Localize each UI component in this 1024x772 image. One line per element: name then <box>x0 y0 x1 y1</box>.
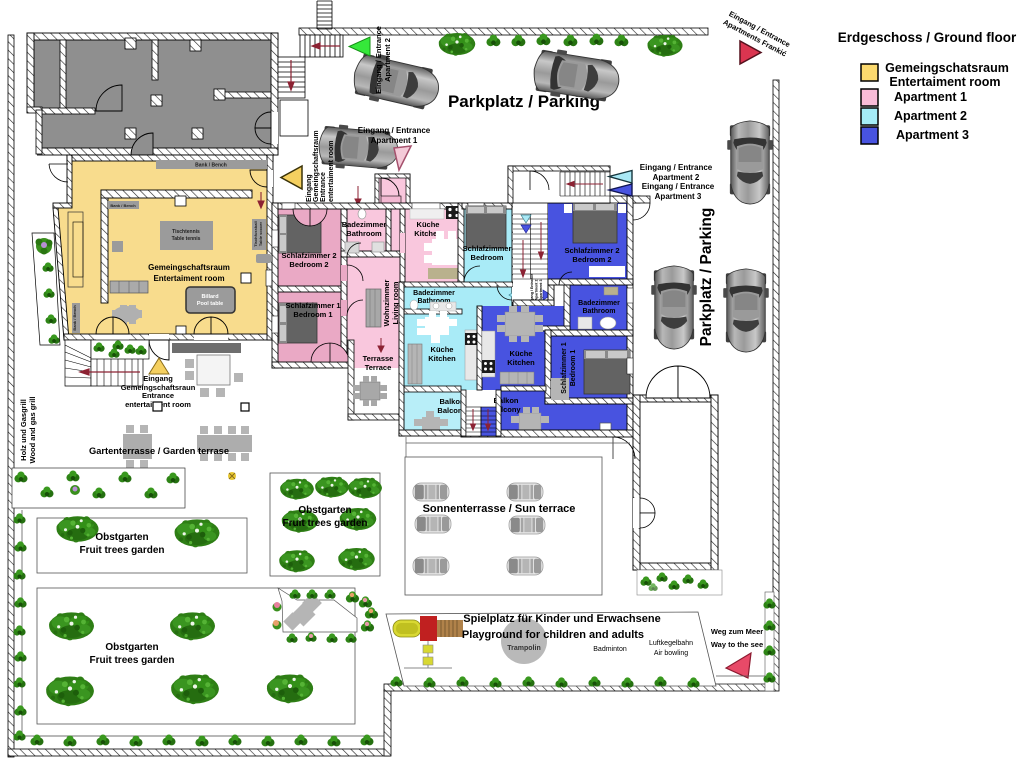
svg-text:Badezimmer: Badezimmer <box>342 220 387 229</box>
svg-text:Entertaiment room: Entertaiment room <box>153 274 224 283</box>
svg-text:Obstgarten: Obstgarten <box>95 532 148 543</box>
svg-text:Table tennis: Table tennis <box>172 236 201 242</box>
svg-text:Table soccer: Table soccer <box>258 221 263 246</box>
svg-text:Bathroom: Bathroom <box>582 308 615 315</box>
svg-text:Apartment 3: Apartment 3 <box>896 128 969 142</box>
svg-text:Schlafzimmer 2: Schlafzimmer 2 <box>281 251 336 260</box>
svg-text:Gemeingschaftsraum: Gemeingschaftsraum <box>148 263 230 272</box>
svg-text:Pool table: Pool table <box>197 301 223 307</box>
svg-text:Fruit trees garden: Fruit trees garden <box>282 518 367 529</box>
svg-text:Gemeingschatsraum: Gemeingschatsraum <box>885 61 1009 75</box>
svg-text:Eingang / Entrance: Eingang / Entrance <box>642 182 715 191</box>
svg-text:Bedroom 2: Bedroom 2 <box>572 255 611 264</box>
svg-text:Bathroom: Bathroom <box>346 229 382 238</box>
svg-text:Luftkegelbahn: Luftkegelbahn <box>649 640 693 647</box>
svg-text:Kitchen: Kitchen <box>428 354 456 363</box>
svg-text:Terrace: Terrace <box>365 363 392 372</box>
svg-text:Küche: Küche <box>510 349 533 358</box>
svg-text:Bedroom 1: Bedroom 1 <box>570 350 577 387</box>
svg-text:Tischtennis: Tischtennis <box>172 229 200 235</box>
svg-text:Badminton: Badminton <box>593 646 627 653</box>
svg-text:Parkplatz / Parking: Parkplatz / Parking <box>698 208 715 347</box>
svg-text:Apartment 3: Apartment 3 <box>539 280 543 301</box>
svg-text:Apartment 3: Apartment 3 <box>655 192 702 201</box>
svg-text:Fruit trees garden: Fruit trees garden <box>89 655 174 666</box>
svg-text:Apartment 1: Apartment 1 <box>371 136 418 145</box>
svg-text:Fruit trees garden: Fruit trees garden <box>79 545 164 556</box>
svg-text:Eingang: Eingang <box>143 374 173 383</box>
svg-text:Bank / Bench: Bank / Bench <box>72 305 77 331</box>
svg-text:Apartment 1: Apartment 1 <box>894 90 967 104</box>
svg-text:Eingang / Entrance: Eingang / Entrance <box>640 163 713 172</box>
svg-text:Kitchen: Kitchen <box>507 358 535 367</box>
svg-text:Entertaiment room: Entertaiment room <box>889 75 1000 89</box>
svg-text:Eingang / Entrance: Eingang / Entrance <box>358 126 431 135</box>
svg-text:Schlafzimmer 1: Schlafzimmer 1 <box>285 301 340 310</box>
svg-text:Bank / Bench: Bank / Bench <box>110 203 136 208</box>
svg-text:Playground for children and ad: Playground for children and adults <box>462 629 644 641</box>
svg-text:Wohnzimmer: Wohnzimmer <box>382 279 391 326</box>
svg-text:Apartment 2: Apartment 2 <box>383 38 392 82</box>
svg-text:Holz und Gasgrill: Holz und Gasgrill <box>19 399 28 461</box>
svg-text:Eingang / Entrance: Eingang / Entrance <box>374 26 383 94</box>
svg-text:Entrance: Entrance <box>320 172 327 202</box>
svg-text:Apartment 2: Apartment 2 <box>535 280 539 301</box>
svg-text:Bank / Bench: Bank / Bench <box>195 163 227 169</box>
svg-text:Weg zum Meer: Weg zum Meer <box>711 627 763 636</box>
svg-text:Schlafzimmer 2: Schlafzimmer 2 <box>564 246 619 255</box>
svg-text:Bedroom: Bedroom <box>471 253 504 262</box>
svg-text:Air bowling: Air bowling <box>654 650 688 657</box>
svg-text:Obstgarten: Obstgarten <box>105 642 158 653</box>
svg-text:Gemeingschaftsraum: Gemeingschaftsraum <box>313 130 320 202</box>
svg-text:Entrance: Entrance <box>142 391 174 400</box>
svg-text:Apartment 2: Apartment 2 <box>894 109 967 123</box>
svg-text:Wood and gas grill: Wood and gas grill <box>28 397 37 464</box>
svg-text:Küche: Küche <box>417 220 440 229</box>
svg-text:Apartment 2: Apartment 2 <box>653 173 700 182</box>
svg-text:Schlafzimmer 1: Schlafzimmer 1 <box>561 342 568 393</box>
svg-text:Badezimmer: Badezimmer <box>578 300 620 307</box>
svg-text:Trampolin: Trampolin <box>507 645 540 652</box>
svg-text:Sonnenterrasse / Sun terrace: Sonnenterrasse / Sun terrace <box>423 503 576 515</box>
svg-text:Schlafzimmer: Schlafzimmer <box>463 244 512 253</box>
svg-text:Bedroom 1: Bedroom 1 <box>293 310 332 319</box>
svg-text:entertaiment room: entertaiment room <box>328 141 335 202</box>
svg-text:Obstgarten: Obstgarten <box>298 505 351 516</box>
svg-text:Way to the see: Way to the see <box>711 640 763 649</box>
svg-text:Spielplatz für Kinder und Erw: Spielplatz für Kinder und Erwachsene <box>463 613 660 625</box>
svg-text:Bedroom 2: Bedroom 2 <box>289 260 328 269</box>
svg-text:Badezimmer: Badezimmer <box>413 290 455 297</box>
svg-text:Terrasse: Terrasse <box>363 354 394 363</box>
svg-text:Küche: Küche <box>431 345 454 354</box>
svg-text:Billard: Billard <box>201 294 218 300</box>
svg-text:Gartenterrasse / Garden terras: Gartenterrasse / Garden terrase <box>89 446 229 456</box>
svg-text:Eingang: Eingang <box>306 174 313 202</box>
svg-text:Erdgeschoss / Ground floor: Erdgeschoss / Ground floor <box>838 30 1017 45</box>
